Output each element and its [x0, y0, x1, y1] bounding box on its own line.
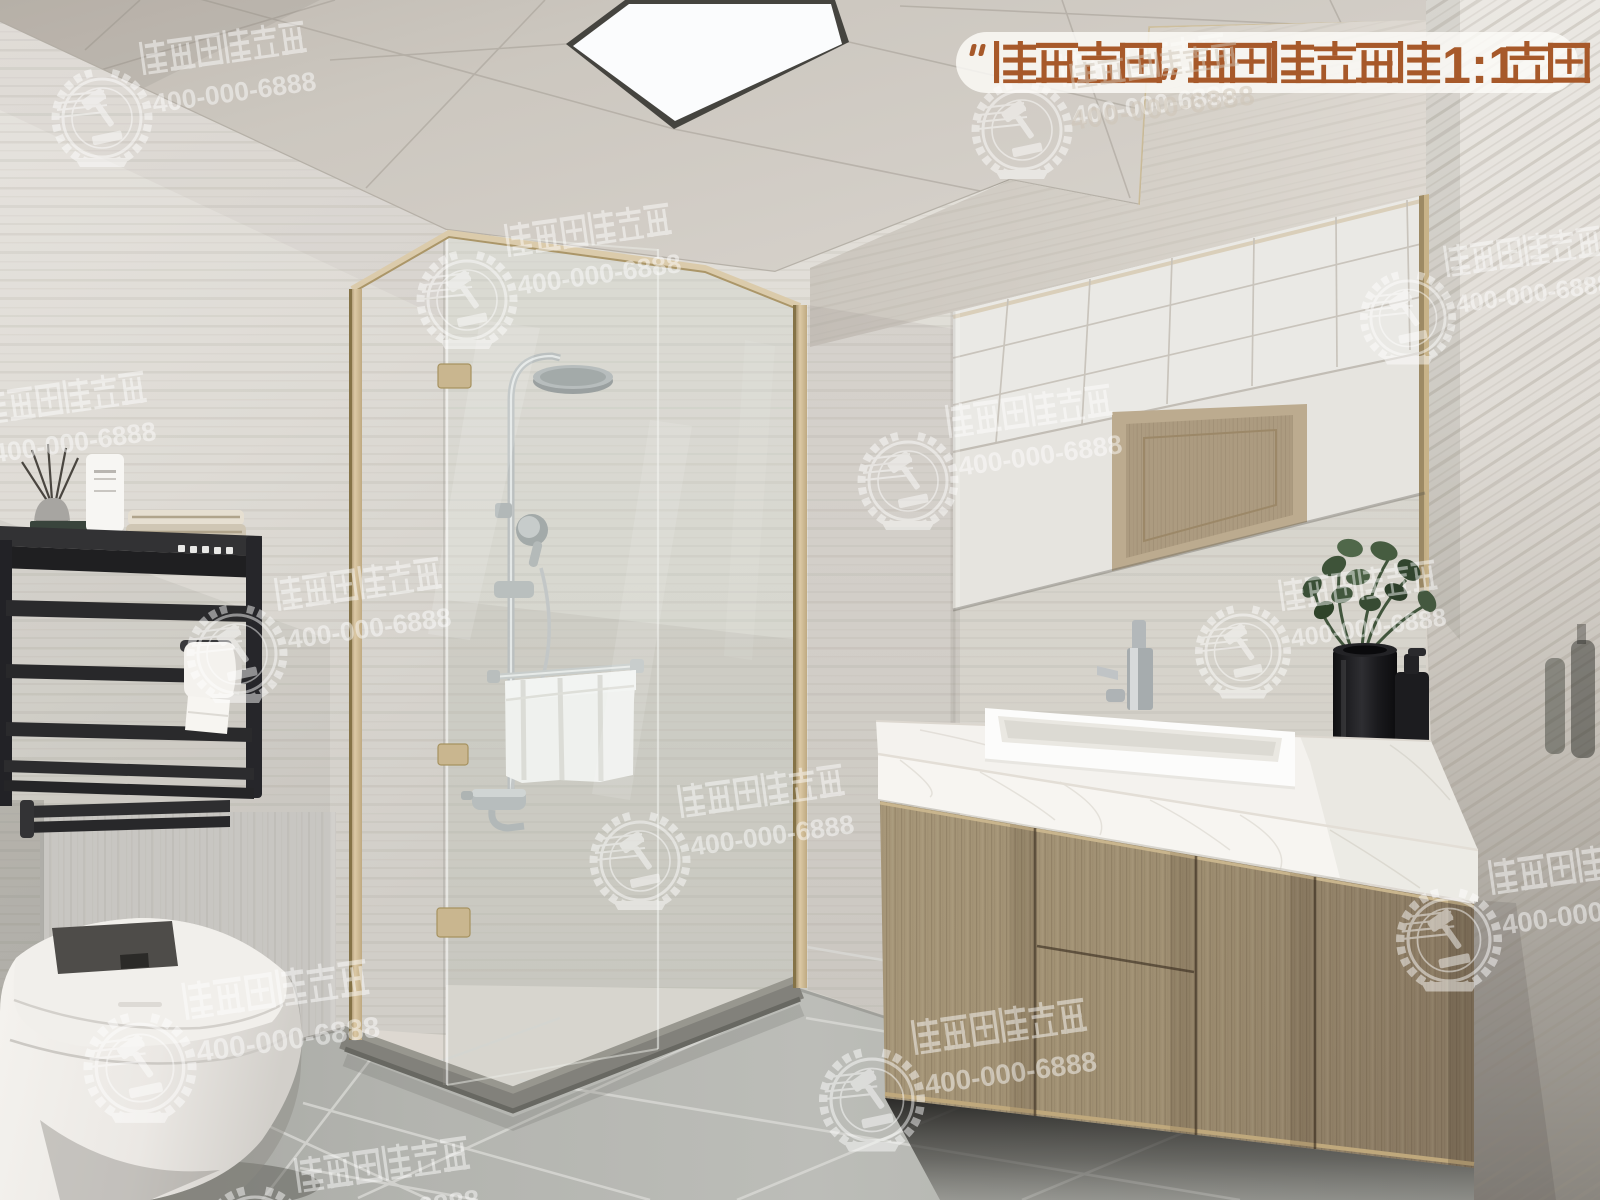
svg-text:1:1: 1:1	[1442, 37, 1517, 95]
